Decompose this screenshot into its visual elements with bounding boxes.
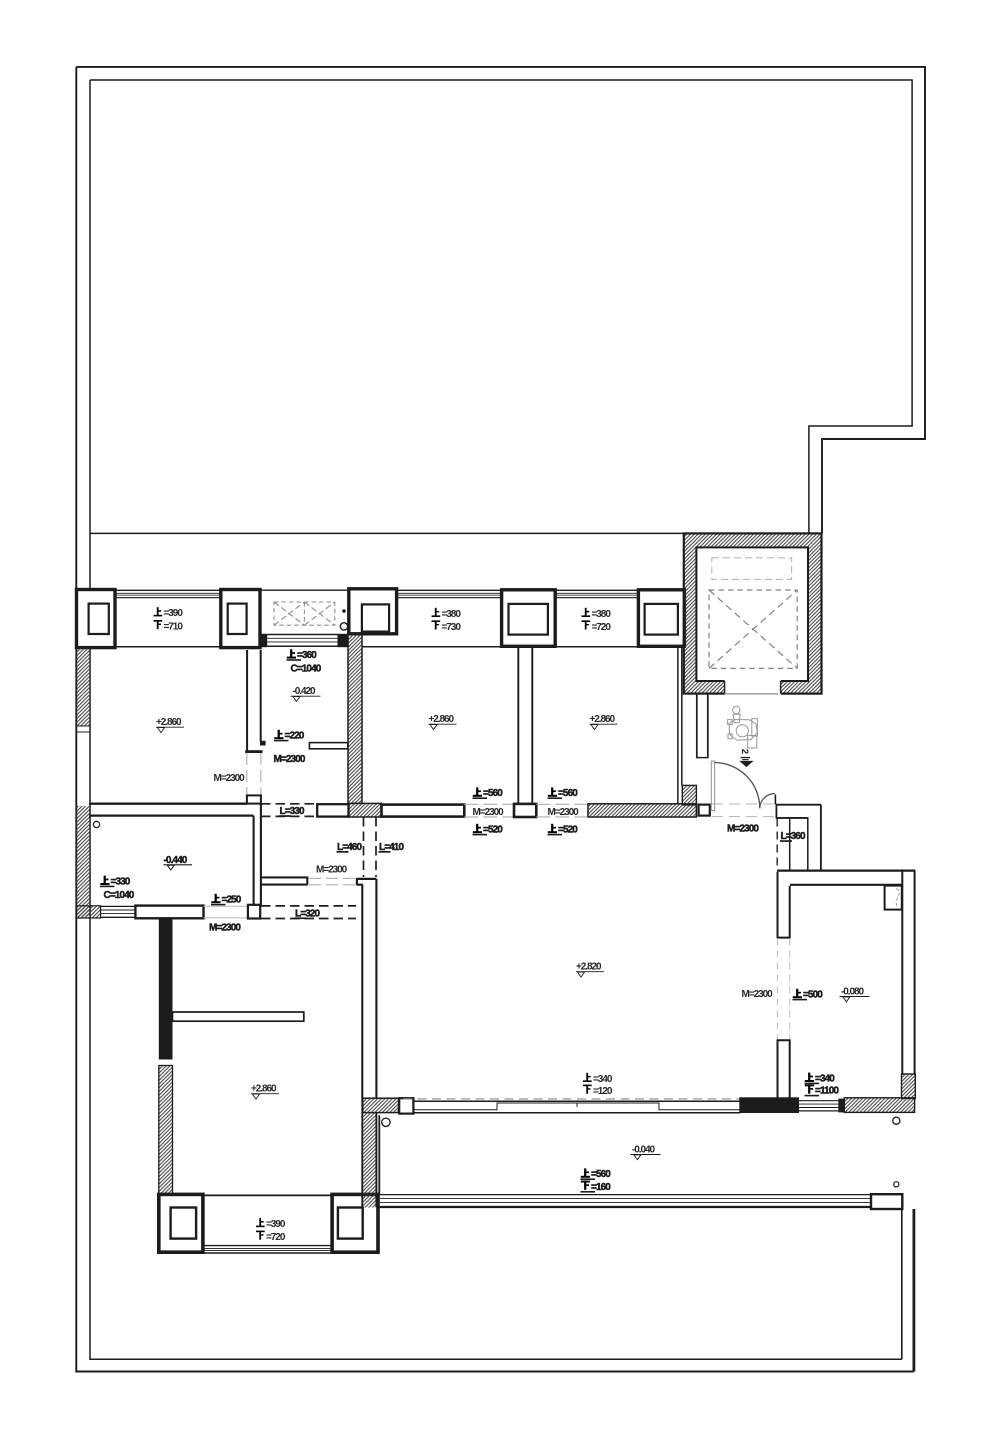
svg-text:+2.860: +2.860 [251, 1084, 277, 1095]
svg-text:M=2300: M=2300 [214, 773, 246, 784]
svg-text:-0.080: -0.080 [841, 987, 865, 998]
svg-text:=340: =340 [593, 1074, 613, 1085]
svg-text:-0.040: -0.040 [632, 1145, 656, 1156]
svg-text:M=2300: M=2300 [548, 807, 580, 818]
svg-text:-0.420: -0.420 [293, 686, 317, 697]
svg-text:=390: =390 [164, 608, 184, 619]
svg-text:=720: =720 [592, 622, 612, 633]
svg-text:M=2300: M=2300 [727, 823, 759, 834]
svg-text:=120: =120 [593, 1086, 613, 1097]
svg-text:M=2300: M=2300 [473, 807, 505, 818]
svg-text:=380: =380 [442, 609, 462, 620]
svg-text:+2.860: +2.860 [590, 714, 616, 725]
svg-text:M=2300: M=2300 [316, 865, 348, 876]
svg-text:=390: =390 [266, 1219, 286, 1230]
svg-text:=380: =380 [592, 609, 612, 620]
svg-text:M=2300: M=2300 [274, 754, 306, 765]
svg-text:M=2300: M=2300 [209, 923, 241, 934]
svg-text:=730: =730 [442, 622, 462, 633]
svg-text:M=2300: M=2300 [742, 989, 774, 1000]
svg-text:+2.860: +2.860 [429, 714, 455, 725]
svg-text:C=1040: C=1040 [291, 663, 322, 674]
svg-text:=720: =720 [266, 1232, 286, 1243]
svg-text:=710: =710 [164, 621, 184, 632]
svg-text:2: 2 [739, 749, 750, 754]
svg-text:+2.860: +2.860 [156, 717, 182, 728]
svg-text:+2.820: +2.820 [576, 962, 602, 973]
svg-text:C=1040: C=1040 [104, 890, 135, 901]
